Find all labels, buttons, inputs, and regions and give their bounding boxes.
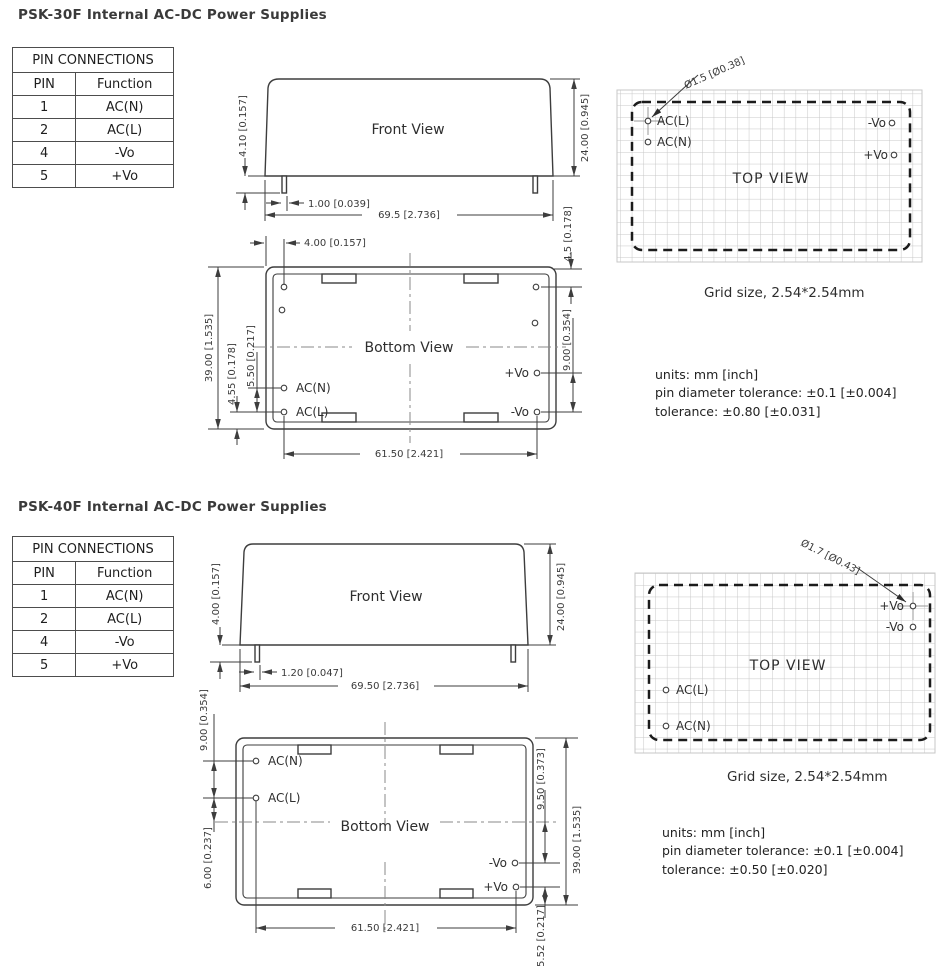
pin-acn xyxy=(253,758,259,764)
note-units: units: mm [inch] xyxy=(655,366,896,384)
pin-number: 1 xyxy=(13,96,76,119)
table-row: 4 -Vo xyxy=(13,631,174,654)
dimension-notes: units: mm [inch] pin diameter tolerance:… xyxy=(662,824,903,879)
dim-pin-length: 4.10 [0.157] xyxy=(238,95,249,157)
note-tolerance: tolerance: ±0.50 [±0.020] xyxy=(662,861,903,879)
dim-ac-pitch: 9.00 [0.354] xyxy=(199,689,210,751)
pin xyxy=(282,176,287,193)
pin xyxy=(533,284,539,290)
dim-vo-pitch: 9.00 [0.354] xyxy=(562,309,573,371)
pin-nvo xyxy=(910,624,916,630)
pin-nvo xyxy=(534,409,540,415)
pin-acn xyxy=(663,723,669,729)
pin-diameter-label: Ø1.5 [Ø0.38] xyxy=(682,54,746,91)
note-pin-tolerance: pin diameter tolerance: ±0.1 [±0.004] xyxy=(655,384,896,402)
pin-label-pvo: +Vo xyxy=(879,599,904,613)
pin-acn xyxy=(281,385,287,391)
dimension-notes: units: mm [inch] pin diameter tolerance:… xyxy=(655,366,896,421)
pin xyxy=(532,320,538,326)
top-view-label: TOP VIEW xyxy=(732,171,810,187)
pin-label-acl: AC(L) xyxy=(676,683,708,697)
dim-height: 24.00 [0.945] xyxy=(580,94,591,162)
pin-number: 2 xyxy=(13,608,76,631)
pin-label-pvo: +Vo xyxy=(504,366,529,380)
dim-nvo-center: 9.50 [0.373] xyxy=(536,748,547,810)
pin-label-nvo: -Vo xyxy=(886,620,904,634)
pin-label-acl: AC(L) xyxy=(657,114,689,128)
pin-number: 1 xyxy=(13,585,76,608)
note-units: units: mm [inch] xyxy=(662,824,903,842)
dim-depth: 39.00 [1.535] xyxy=(204,314,215,382)
pin-function: AC(N) xyxy=(76,585,174,608)
pin-acl xyxy=(281,409,287,415)
mounting-notch xyxy=(440,745,473,754)
dim-top-pin: 4.5 [0.178] xyxy=(563,206,574,262)
pin-function: +Vo xyxy=(76,654,174,677)
dim-width: 69.5 [2.736] xyxy=(378,210,440,221)
pin-table-header: PIN CONNECTIONS xyxy=(13,48,174,73)
psk40f-front-view-drawing: Front View 4.00 [0.157] 24.00 [0.945] 1.… xyxy=(200,530,575,715)
dim-pin-length: 4.00 [0.157] xyxy=(211,563,222,625)
pin xyxy=(281,284,287,290)
pin-label-acn: AC(N) xyxy=(657,135,692,149)
pin-connections-table: PIN CONNECTIONS PIN Function 1 AC(N) 2 A… xyxy=(12,536,174,677)
pin xyxy=(533,176,538,193)
dim-ac-pitch: 5.50 [0.217] xyxy=(246,325,257,387)
psk30f-front-view-drawing: Front View 4.10 [0.157] 24.00 [0.945] 1.… xyxy=(230,50,610,228)
pin-number: 4 xyxy=(13,142,76,165)
mounting-notch xyxy=(298,889,331,898)
pin-label-nvo: -Vo xyxy=(511,405,529,419)
dim-pin-width: 1.20 [0.047] xyxy=(281,668,343,679)
dim-acl-center: 6.00 [0.237] xyxy=(203,827,214,889)
pin-nvo xyxy=(889,120,895,126)
pin-label-acn: AC(N) xyxy=(268,754,303,768)
table-row: 2 AC(L) xyxy=(13,608,174,631)
pin-label-acl: AC(L) xyxy=(268,791,300,805)
pin-label-nvo: -Vo xyxy=(489,856,507,870)
bottom-view-label: Bottom View xyxy=(364,340,453,356)
pin-function: -Vo xyxy=(76,142,174,165)
pin-pvo xyxy=(534,370,540,376)
dim-acl-edge: 4.55 [0.178] xyxy=(227,343,238,405)
function-column-header: Function xyxy=(76,73,174,96)
pin-label-nvo: -Vo xyxy=(868,116,886,130)
table-row: 1 AC(N) xyxy=(13,585,174,608)
pin-number: 5 xyxy=(13,654,76,677)
note-pin-tolerance: pin diameter tolerance: ±0.1 [±0.004] xyxy=(662,842,903,860)
section-title-psk40f: PSK-40F Internal AC-DC Power Supplies xyxy=(18,499,327,515)
top-view-label: TOP VIEW xyxy=(749,658,827,674)
table-row: 4 -Vo xyxy=(13,142,174,165)
mounting-notch xyxy=(298,745,331,754)
mounting-notch xyxy=(440,889,473,898)
table-row: 5 +Vo xyxy=(13,654,174,677)
pin xyxy=(255,645,260,662)
note-tolerance: tolerance: ±0.80 [±0.031] xyxy=(655,403,896,421)
grid-size-caption: Grid size, 2.54*2.54mm xyxy=(704,285,865,301)
pin-label-acn: AC(N) xyxy=(296,381,331,395)
front-view-label: Front View xyxy=(371,122,444,138)
pin-connections-table: PIN CONNECTIONS PIN Function 1 AC(N) 2 A… xyxy=(12,47,174,188)
pin-pvo xyxy=(891,152,897,158)
dim-depth: 39.00 [1.535] xyxy=(572,806,583,874)
mounting-notch xyxy=(464,413,498,422)
section-title-psk30f: PSK-30F Internal AC-DC Power Supplies xyxy=(18,7,327,23)
table-row: 2 AC(L) xyxy=(13,119,174,142)
table-row: 1 AC(N) xyxy=(13,96,174,119)
pin-function: +Vo xyxy=(76,165,174,188)
pin-column-header: PIN xyxy=(13,73,76,96)
pin xyxy=(279,307,285,313)
pin-label-pvo: +Vo xyxy=(863,148,888,162)
table-row: 5 +Vo xyxy=(13,165,174,188)
pin-function: AC(L) xyxy=(76,119,174,142)
psk30f-bottom-view-drawing: Bottom View AC(N) AC(L) +Vo -Vo 4.00 [0.… xyxy=(195,222,600,475)
pin-diameter-label: Ø1.7 [Ø0.43] xyxy=(799,537,862,577)
bottom-view-label: Bottom View xyxy=(340,819,429,835)
pin-number: 5 xyxy=(13,165,76,188)
pin-acl xyxy=(663,687,669,693)
function-column-header: Function xyxy=(76,562,174,585)
datasheet-page: PSK-30F Internal AC-DC Power Supplies PI… xyxy=(0,0,952,966)
front-view-label: Front View xyxy=(349,589,422,605)
dim-pin-inset: 4.00 [0.157] xyxy=(304,238,366,249)
pin xyxy=(511,645,516,662)
dim-pvo-edge: 5.52 [0.217] xyxy=(536,905,547,966)
grid-size-caption: Grid size, 2.54*2.54mm xyxy=(727,769,888,785)
dim-height: 24.00 [0.945] xyxy=(556,563,567,631)
mounting-notch xyxy=(464,274,498,283)
pin-acl xyxy=(645,118,651,124)
pin-function: -Vo xyxy=(76,631,174,654)
psk40f-bottom-view-drawing: Bottom View AC(N) AC(L) -Vo +Vo 9.00 [0.… xyxy=(195,690,600,966)
pin-function: AC(N) xyxy=(76,96,174,119)
dim-pin-width: 1.00 [0.039] xyxy=(308,199,370,210)
pin-acn xyxy=(645,139,651,145)
pin-label-acn: AC(N) xyxy=(676,719,711,733)
pin-number: 4 xyxy=(13,631,76,654)
pin-pvo xyxy=(513,884,519,890)
pin-number: 2 xyxy=(13,119,76,142)
pin-nvo xyxy=(512,860,518,866)
pin-function: AC(L) xyxy=(76,608,174,631)
pin-column-header: PIN xyxy=(13,562,76,585)
psk40f-top-view-drawing: Ø1.7 [Ø0.43] +Vo -Vo AC(L) AC(N) TOP VIE… xyxy=(620,520,952,800)
mounting-notch xyxy=(322,274,356,283)
dim-pin-span: 61.50 [2.421] xyxy=(351,923,419,934)
pin-label-acl: AC(L) xyxy=(296,405,328,419)
pin-acl xyxy=(253,795,259,801)
pin-label-pvo: +Vo xyxy=(483,880,508,894)
pin-pvo xyxy=(910,603,916,609)
psk30f-top-view-drawing: Ø1.5 [Ø0.38] AC(L) AC(N) -Vo +Vo TOP VIE… xyxy=(610,40,952,310)
pin-table-header: PIN CONNECTIONS xyxy=(13,537,174,562)
dim-pin-span: 61.50 [2.421] xyxy=(375,449,443,460)
